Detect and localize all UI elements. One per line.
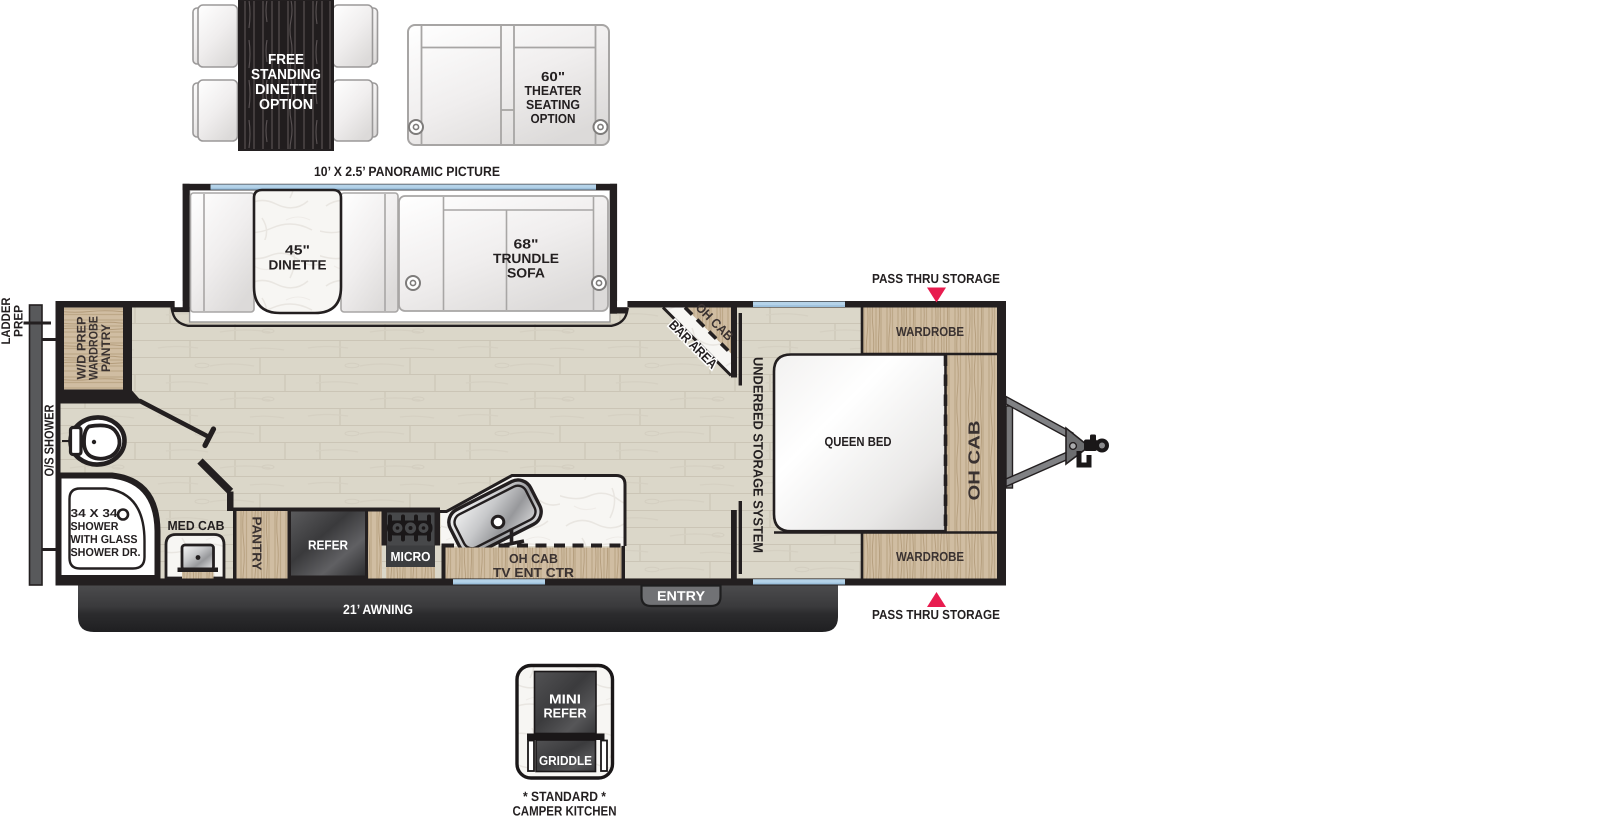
svg-text:REFER: REFER	[544, 706, 588, 721]
svg-text:FREE: FREE	[268, 52, 304, 68]
svg-text:SEATING: SEATING	[526, 97, 580, 112]
svg-text:REFER: REFER	[308, 538, 349, 553]
svg-text:60": 60"	[541, 69, 565, 84]
svg-text:DINETTE: DINETTE	[255, 82, 317, 98]
svg-text:UNDERBED STORAGE SYSTEM: UNDERBED STORAGE SYSTEM	[751, 357, 766, 553]
svg-text:OPTION: OPTION	[259, 97, 313, 113]
svg-text:PANTRY: PANTRY	[250, 517, 265, 571]
svg-text:PASS THRU STORAGE: PASS THRU STORAGE	[872, 607, 1000, 622]
svg-text:MICRO: MICRO	[391, 549, 431, 564]
svg-text:CAMPER KITCHEN: CAMPER KITCHEN	[513, 804, 617, 816]
svg-text:10’ X 2.5’ PANORAMIC PICTURE: 10’ X 2.5’ PANORAMIC PICTURE	[314, 164, 500, 179]
svg-text:21’ AWNING: 21’ AWNING	[343, 602, 413, 617]
svg-text:ENTRY: ENTRY	[657, 589, 705, 604]
svg-text:WITH GLASS: WITH GLASS	[71, 534, 138, 546]
svg-text:THEATER: THEATER	[525, 83, 583, 98]
svg-text:WARDROBE: WARDROBE	[896, 324, 964, 339]
svg-text:PREP: PREP	[12, 305, 26, 337]
svg-text:GRIDDLE: GRIDDLE	[539, 753, 592, 768]
svg-text:45": 45"	[285, 243, 310, 258]
svg-text:OPTION: OPTION	[531, 111, 576, 126]
svg-text:MED CAB: MED CAB	[168, 518, 225, 533]
svg-text:SOFA: SOFA	[507, 266, 545, 281]
svg-text:QUEEN BED: QUEEN BED	[825, 434, 892, 449]
svg-text:WARDROBE: WARDROBE	[896, 549, 964, 564]
svg-text:STANDING: STANDING	[251, 67, 321, 83]
svg-text:OH CAB: OH CAB	[509, 551, 558, 566]
svg-text:MINI: MINI	[549, 692, 581, 707]
svg-text:PANTRY: PANTRY	[99, 323, 113, 372]
svg-text:* STANDARD *: * STANDARD *	[523, 789, 607, 804]
svg-text:TV ENT CTR: TV ENT CTR	[493, 565, 575, 580]
svg-text:68": 68"	[514, 237, 539, 252]
svg-text:PASS THRU STORAGE: PASS THRU STORAGE	[872, 271, 1000, 286]
svg-text:DINETTE: DINETTE	[269, 258, 327, 273]
svg-text:O/S SHOWER: O/S SHOWER	[42, 404, 57, 477]
svg-text:SHOWER: SHOWER	[71, 521, 120, 533]
svg-text:34 X 34: 34 X 34	[71, 508, 119, 520]
svg-text:OH CAB: OH CAB	[967, 421, 984, 501]
svg-text:TRUNDLE: TRUNDLE	[493, 251, 559, 266]
svg-text:SHOWER DR.: SHOWER DR.	[71, 547, 141, 559]
